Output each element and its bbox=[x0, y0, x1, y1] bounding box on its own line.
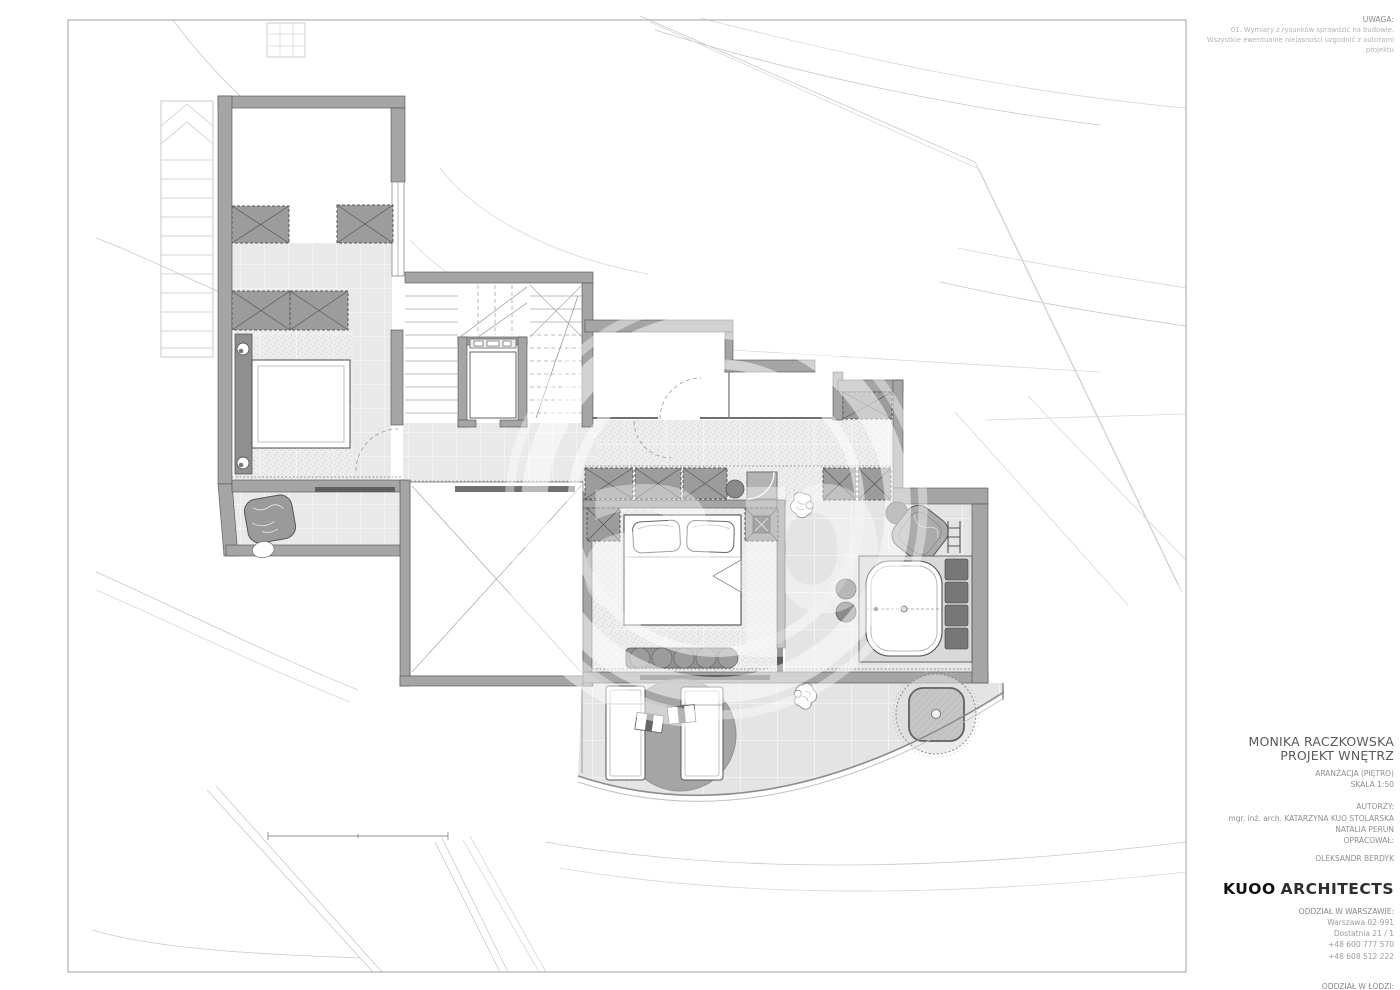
drawing-note: UWAGA: 01. Wymiary z rysunków sprawdzić … bbox=[1207, 14, 1394, 56]
note-line: 01. Wymiary z rysunków sprawdzić na budo… bbox=[1207, 26, 1394, 36]
office-warsaw: ODDZIAŁ W WARSZAWIE: Warszawa 02-991 Dos… bbox=[1034, 906, 1394, 962]
project-type: PROJEKT WNĘTRZ bbox=[1034, 749, 1394, 763]
note-title: UWAGA: bbox=[1207, 14, 1394, 25]
studio-watermark: ap bbox=[509, 301, 923, 719]
window bbox=[392, 182, 404, 276]
wardrobe-room-floor bbox=[232, 108, 391, 205]
office-label: ODDZIAŁ W WARSZAWIE: bbox=[1034, 906, 1394, 917]
exterior-stairs bbox=[161, 101, 213, 357]
wardrobe-unit bbox=[337, 205, 393, 243]
client-name: MONIKA RACZKOWSKA bbox=[1034, 735, 1394, 749]
note-line: projektu bbox=[1207, 46, 1394, 56]
glass-door bbox=[315, 487, 395, 492]
wardrobe-unit bbox=[232, 291, 290, 330]
studio-name-rest: ARCHITECTS bbox=[1281, 880, 1394, 898]
office-line: +48 608 512 222 bbox=[1034, 951, 1394, 962]
void-railing bbox=[455, 486, 575, 492]
author: NATALIA PERUŃ bbox=[1034, 824, 1394, 835]
note-line: Wszystkie ewentualne niejasności uzgodni… bbox=[1207, 36, 1394, 46]
office-line: Warszawa 02-991 bbox=[1034, 917, 1394, 928]
office-label: ODDZIAŁ W ŁODZI: bbox=[1034, 981, 1394, 990]
prepared-by: OLEKSANDR BERDYK bbox=[1034, 853, 1394, 864]
office-line: +48 600 777 570 bbox=[1034, 939, 1394, 950]
authors-label: AUTORZY: bbox=[1034, 801, 1394, 812]
floor-plan-sheet: ap UWAGA: 01. Wymiary z rysunków sprawdz… bbox=[0, 0, 1400, 990]
corridor-floor bbox=[403, 423, 595, 482]
studio-logo: KUOOARCHITECTS bbox=[1034, 880, 1394, 898]
dimension-line bbox=[268, 832, 448, 840]
author: mgr. inż. arch. KATARZYNA KUO STOLARSKA bbox=[1034, 813, 1394, 824]
title-block: MONIKA RACZKOWSKA PROJEKT WNĘTRZ ARANŻAC… bbox=[1034, 735, 1394, 990]
drawing-name: ARANŻACJA (PIĘTRO) bbox=[1034, 768, 1394, 779]
neighbor-structure bbox=[267, 23, 305, 57]
office-lodz: ODDZIAŁ W ŁODZI: Łódź 90-056 Off Piotrko… bbox=[1034, 981, 1394, 990]
wardrobe-unit bbox=[290, 291, 348, 330]
studio-name-bold: KUOO bbox=[1223, 880, 1276, 898]
watermark-letters: ap bbox=[575, 402, 888, 664]
drawing-scale: SKALA 1:50 bbox=[1034, 779, 1394, 790]
office-line: Dostatnia 21 / 1 bbox=[1034, 928, 1394, 939]
prepared-label: OPRACOWAŁ: bbox=[1034, 835, 1394, 846]
wardrobe-unit bbox=[232, 206, 289, 243]
